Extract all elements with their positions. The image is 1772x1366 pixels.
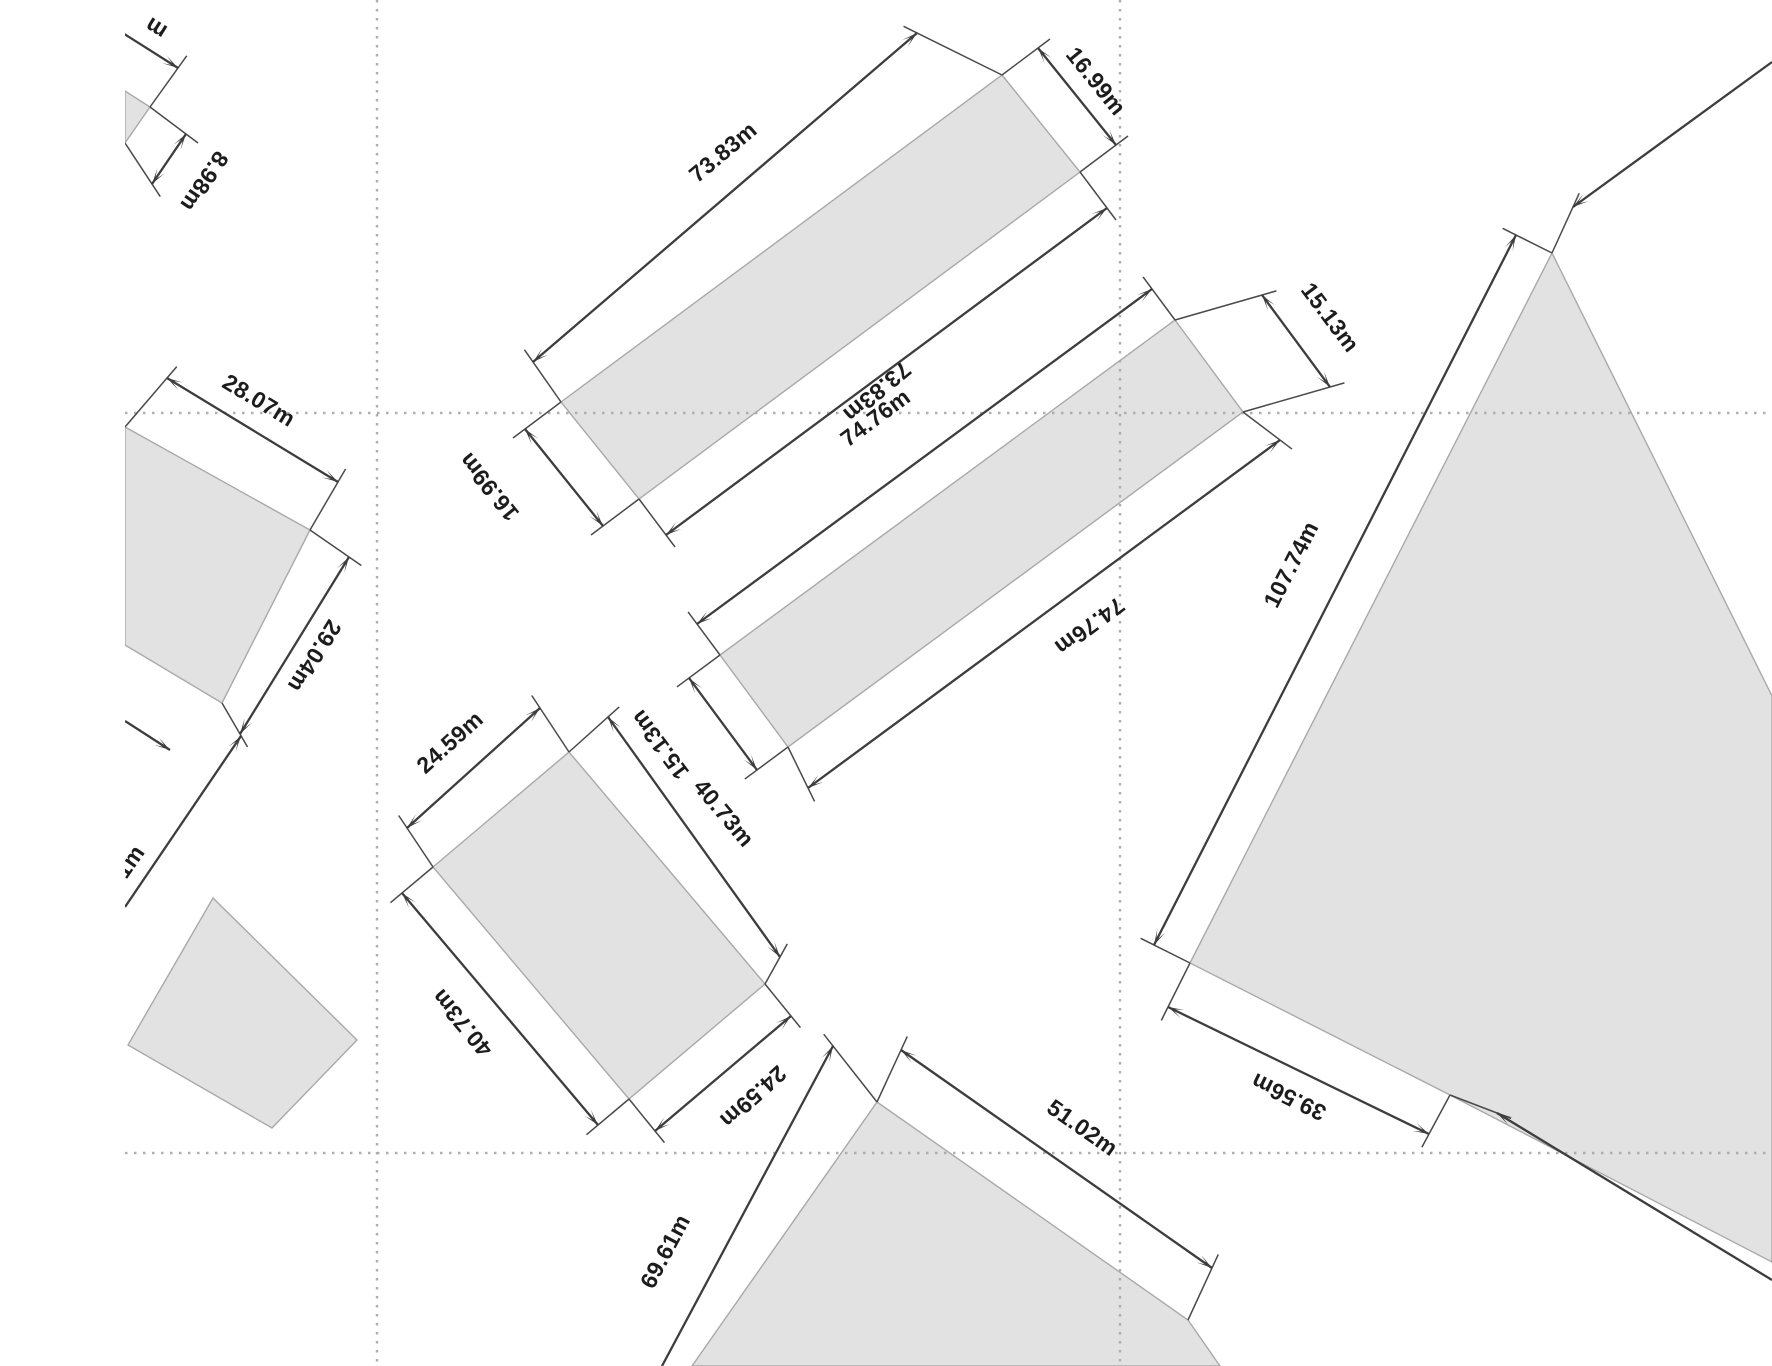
parcel-measurement-drawing: m8.98m28.07m29.04m1m73.83m73.83m16.99m16… <box>0 0 1772 1366</box>
left-margin-mask <box>0 0 125 1366</box>
cadastral-map-canvas: m8.98m28.07m29.04m1m73.83m73.83m16.99m16… <box>0 0 1772 1366</box>
